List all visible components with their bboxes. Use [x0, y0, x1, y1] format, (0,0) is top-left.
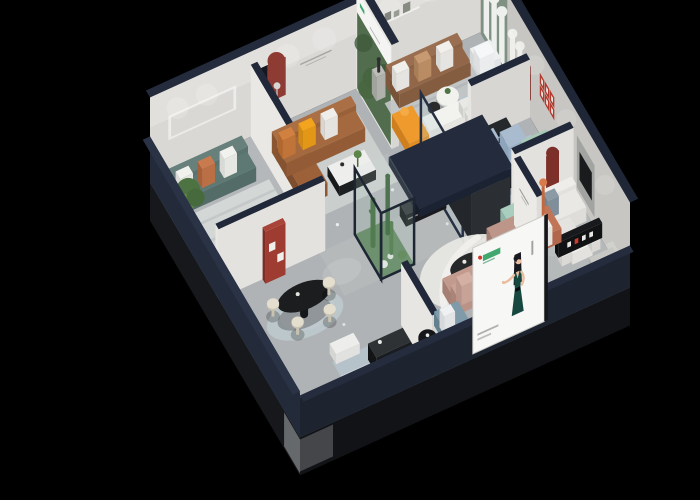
- table-decor: [462, 260, 466, 264]
- ad-board-edge: [544, 214, 548, 322]
- ad-logo-mark-red: [478, 256, 482, 260]
- wall-light-spot: [595, 175, 615, 195]
- wall-moulding-line: [233, 87, 236, 108]
- arch-opening-top: [515, 41, 525, 51]
- table-decor: [340, 162, 344, 166]
- bar-decor: [296, 292, 300, 296]
- arch-opening-top: [508, 29, 518, 39]
- floor-lamp-head: [539, 178, 547, 186]
- showroom-scene: Isometric cutaway 3D render of a furnitu…: [0, 0, 700, 500]
- light-speck: [336, 223, 339, 226]
- chaise-bolster: [400, 107, 409, 116]
- statue-pedestal-front: [376, 73, 385, 101]
- table-cup: [426, 333, 430, 337]
- wall-light-spot: [312, 27, 336, 51]
- table-plant: [354, 150, 362, 158]
- ad-woman-face-front: [517, 259, 522, 264]
- showroom-svg: [0, 0, 700, 500]
- table-plant: [445, 88, 451, 94]
- arch-panel-top: [496, 6, 507, 17]
- wall-moulding-line: [168, 117, 171, 138]
- ad-woman-palm: [502, 281, 505, 284]
- poster-foliage: [355, 34, 373, 52]
- light-speck: [446, 222, 449, 225]
- cabinet-decor: [378, 340, 382, 344]
- red-display-shelf-left: [263, 227, 266, 284]
- statue-head: [377, 57, 381, 61]
- light-speck: [342, 323, 345, 326]
- red-arch-top: [268, 52, 286, 70]
- red-arch-top: [546, 147, 559, 160]
- ad-vertical-text: [531, 240, 533, 255]
- niche-sculpture: [274, 82, 281, 89]
